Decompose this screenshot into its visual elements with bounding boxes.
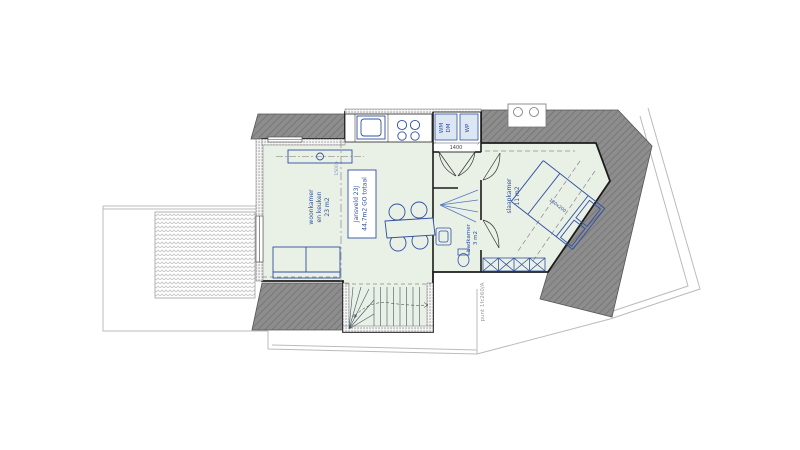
- bathroom-area-label: 3 m2: [473, 231, 479, 245]
- bathroom-label: badkamer: [466, 223, 472, 252]
- bedroom-area-label: 11 m2: [514, 186, 521, 205]
- living-room-label: woonkamer: [308, 189, 315, 225]
- chair: [389, 204, 405, 220]
- reference-label: punt 1fc260/A: [480, 282, 486, 321]
- vent-pipe-icon: [514, 108, 523, 117]
- dryer-label: DM: [446, 123, 452, 132]
- roof-top-left: [251, 114, 345, 139]
- floor-plan-drawing: 180x200 Jansveld 23J 44,7m2 GO totaal wo…: [0, 0, 800, 450]
- terrace: [155, 212, 255, 298]
- unit-name-label: Jansveld 23J: [353, 186, 360, 224]
- unit-area-label: 44,7m2 GO totaal: [362, 177, 369, 231]
- roof-vent: [508, 104, 546, 127]
- roof-bottom-left: [252, 283, 345, 330]
- vent-pipe-icon: [530, 108, 539, 117]
- bedroom-label: slaapkamer: [506, 178, 513, 214]
- dining-table: [385, 218, 435, 238]
- heat-pump-label: WP: [465, 123, 471, 132]
- washing-machine-label: WM: [439, 123, 445, 133]
- living-room-area-label: 23 m2: [324, 197, 331, 216]
- floor-plan-canvas: 180x200 Jansveld 23J 44,7m2 GO totaal wo…: [0, 0, 800, 450]
- living-room-label: en keuken: [316, 191, 323, 222]
- chair: [411, 202, 427, 218]
- height-line-label: 1500+: [334, 160, 340, 175]
- dimension-label: 1400: [450, 145, 463, 151]
